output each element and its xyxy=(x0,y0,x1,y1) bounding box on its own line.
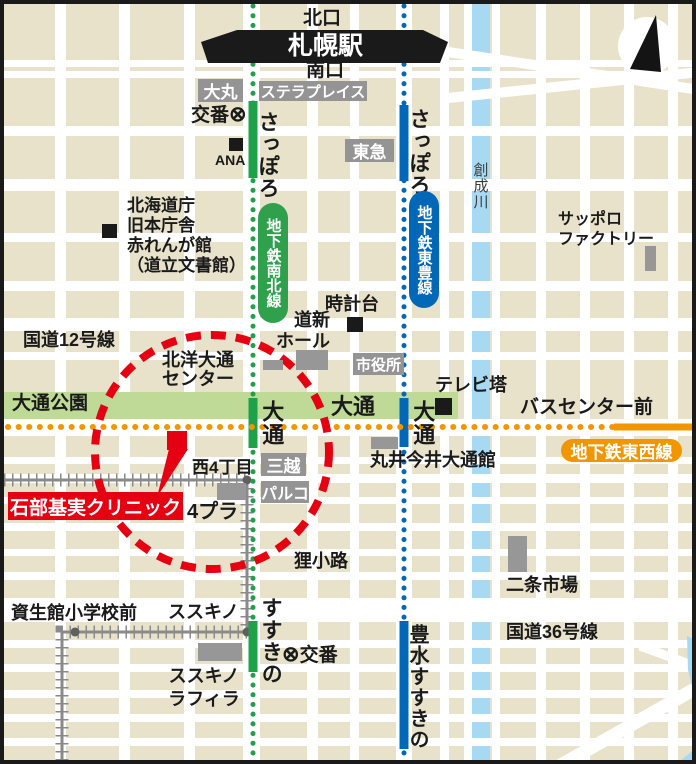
odori-station-toho-label: 大通 xyxy=(410,400,434,446)
toho-sapporo-station-name: さっぽろ xyxy=(407,108,430,196)
tram-stop-shiseikan xyxy=(71,628,80,637)
mitsukoshi-label: 三越 xyxy=(261,453,306,476)
police-box-north-label: 交番 xyxy=(191,105,229,126)
clinic-name-label: 石部基実クリニック xyxy=(8,492,183,520)
police-box-icon: ⊗ xyxy=(229,103,247,126)
susukino-station-label: すすきの xyxy=(259,597,282,685)
waterway-patch xyxy=(676,748,696,764)
route12-label: 国道12号線 xyxy=(23,331,115,351)
namboku-line-pill: 地下鉄南北線 xyxy=(258,203,288,323)
odori-station-center-label: 大通 xyxy=(331,395,375,419)
route36-label: 国道36号線 xyxy=(506,623,598,643)
parco-label: パルコ xyxy=(261,481,309,503)
north-exit-label: 北口 xyxy=(303,9,341,30)
hokuyo-line2: センター xyxy=(162,370,234,389)
hokuyo-line1: 北洋大通 xyxy=(162,351,234,370)
hosui-susukino-station-label: 豊水すすきの xyxy=(406,624,428,750)
yonpla-label: 4プラ xyxy=(187,501,238,523)
map-canvas: 北口 札幌駅 南口 ステラプレイス 大丸 交番⊗ ANA 東急 さっぽろ さっぽ… xyxy=(0,0,696,764)
tram-stop-nishi4chome-label: 西4丁目 xyxy=(192,459,252,478)
doshin-line2: ホール xyxy=(270,331,330,352)
pref-line4: （道立文書館） xyxy=(127,256,246,276)
tram-stop-susukino-label: ススキノ xyxy=(168,603,239,623)
building xyxy=(371,437,398,449)
clock-tower-label: 時計台 xyxy=(325,295,379,315)
pref-line1: 北海道庁 xyxy=(127,196,246,216)
pref-building-label: 北海道庁 旧本庁舎 赤れんが館 （道立文書館） xyxy=(127,196,246,276)
south-exit-label: 南口 xyxy=(306,61,344,82)
doshin-line1: 道新 xyxy=(270,310,330,331)
compass xyxy=(618,15,676,75)
tv-tower-label: テレビ塔 xyxy=(435,376,507,396)
lafiler-line1: ススキノ xyxy=(168,665,240,688)
pref-building-marker xyxy=(102,224,117,238)
tozai-line-pill: 地下鉄東西線 xyxy=(561,439,682,462)
hokuyo-odori-center-label: 北洋大通 センター xyxy=(162,351,234,389)
daimaru-label: 大丸 xyxy=(198,79,243,102)
nijo-market-label: 二条市場 xyxy=(506,576,578,596)
pref-line2: 旧本庁舎 xyxy=(127,216,246,236)
building xyxy=(296,350,328,370)
building xyxy=(217,483,246,500)
tv-tower-marker xyxy=(435,398,452,415)
nijo-market-building xyxy=(508,536,527,572)
lafiler-line2: ラフィラ xyxy=(168,688,240,711)
bus-center-mae-label: バスセンター前 xyxy=(520,398,653,419)
pref-line3: 赤れんが館 xyxy=(127,236,246,256)
odori-station-namboku-label: 大通 xyxy=(259,400,283,446)
clinic-location-marker xyxy=(167,431,187,450)
namboku-sapporo-station-name: さっぽろ xyxy=(256,111,279,199)
sapporo-station-label: 札幌駅 xyxy=(288,33,363,61)
tanukikoji-label: 狸小路 xyxy=(294,552,348,572)
stellar-place-label: ステラプレイス xyxy=(259,81,367,101)
tram-stop-shiseikan-label: 資生館小学校前 xyxy=(11,604,137,624)
police-box-south: ⊗交番 xyxy=(282,643,338,667)
tokyu-label: 東急 xyxy=(345,139,394,162)
building xyxy=(263,360,283,370)
clinic-callout-pointer xyxy=(157,449,188,497)
factory-line2: ファクトリー xyxy=(558,230,654,250)
toho-line-pill: 地下鉄東豊線 xyxy=(409,191,439,308)
ana-label: ANA xyxy=(215,153,245,168)
factory-line1: サッポロ xyxy=(558,210,654,230)
ana-building-marker xyxy=(229,138,243,151)
odori-park-label: 大通公園 xyxy=(12,394,88,415)
clock-tower-marker xyxy=(347,317,363,332)
city-hall-label: 市役所 xyxy=(353,353,404,375)
police-box-icon: ⊗ xyxy=(282,643,300,666)
sapporo-factory-label: サッポロ ファクトリー xyxy=(558,210,654,250)
sosei-river-label: 創成川 xyxy=(471,162,488,210)
police-box-north: 交番⊗ xyxy=(191,103,247,127)
doshin-hall-label: 道新 ホール xyxy=(270,310,330,352)
police-box-south-label: 交番 xyxy=(300,645,338,666)
marui-imai-label: 丸井今井大通館 xyxy=(370,451,496,471)
susukino-lafiler-label: ススキノ ラフィラ xyxy=(168,665,240,711)
lafiler-building xyxy=(198,643,242,661)
